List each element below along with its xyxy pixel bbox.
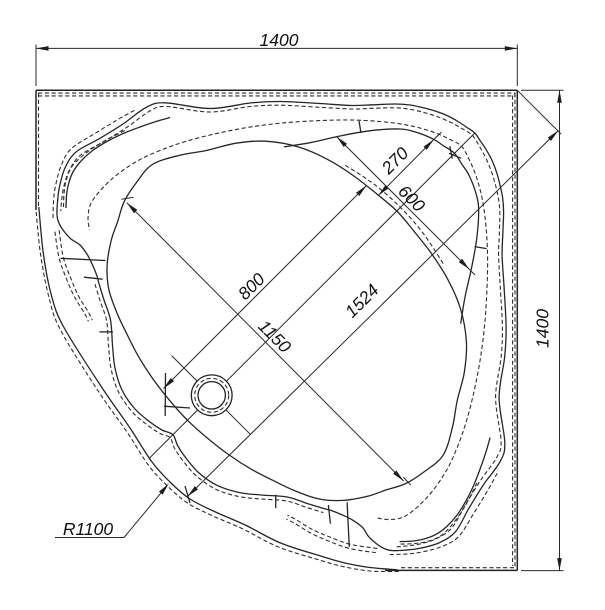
svg-text:1400: 1400 [533, 309, 553, 348]
svg-text:1400: 1400 [260, 30, 299, 50]
svg-text:R1100: R1100 [63, 519, 114, 539]
